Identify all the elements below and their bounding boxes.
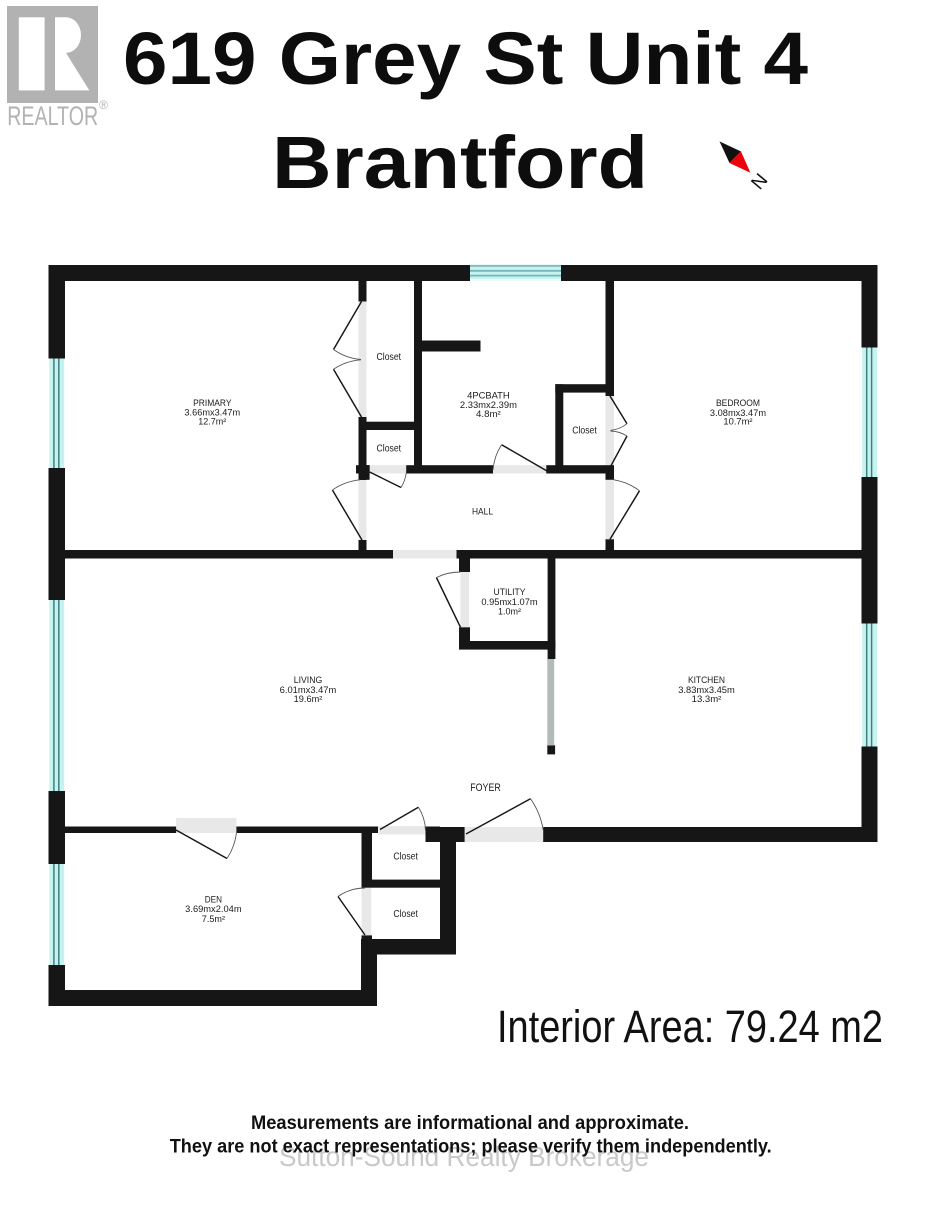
svg-text:LIVING: LIVING	[294, 675, 323, 685]
svg-text:Measurements are informational: Measurements are informational and appro…	[251, 1113, 689, 1134]
svg-text:PRIMARY: PRIMARY	[193, 398, 231, 408]
svg-text:Interior Area: 79.24 m2: Interior Area: 79.24 m2	[497, 1001, 883, 1052]
svg-text:12.7m²: 12.7m²	[198, 416, 226, 426]
svg-text:DEN: DEN	[205, 894, 222, 904]
svg-text:13.3m²: 13.3m²	[692, 694, 722, 704]
svg-text:3.69mx2.04m: 3.69mx2.04m	[185, 904, 241, 914]
svg-text:UTILITY: UTILITY	[494, 587, 526, 597]
svg-text:10.7m²: 10.7m²	[723, 416, 752, 426]
svg-text:4PCBATH: 4PCBATH	[467, 390, 510, 400]
svg-text:4.8m²: 4.8m²	[476, 409, 501, 419]
svg-text:HALL: HALL	[472, 506, 493, 516]
svg-text:Closet: Closet	[377, 351, 402, 363]
svg-text:7.5m²: 7.5m²	[202, 914, 225, 924]
svg-text:®: ®	[99, 98, 108, 112]
svg-text:They are not exact representat: They are not exact representations; plea…	[170, 1137, 772, 1158]
svg-text:Brantford: Brantford	[272, 121, 648, 204]
svg-text:0.95mx1.07m: 0.95mx1.07m	[481, 597, 537, 607]
svg-text:BEDROOM: BEDROOM	[716, 398, 760, 408]
svg-text:Closet: Closet	[572, 424, 597, 436]
svg-text:19.6m²: 19.6m²	[294, 694, 323, 704]
svg-text:REALTOR: REALTOR	[7, 101, 98, 131]
svg-text:KITCHEN: KITCHEN	[688, 675, 725, 685]
svg-text:Closet: Closet	[393, 850, 418, 862]
svg-text:FOYER: FOYER	[470, 782, 501, 794]
svg-text:619 Grey St Unit 4: 619 Grey St Unit 4	[123, 17, 808, 100]
svg-text:1.0m²: 1.0m²	[498, 607, 521, 617]
svg-text:Closet: Closet	[393, 908, 418, 920]
svg-text:Closet: Closet	[377, 443, 402, 455]
